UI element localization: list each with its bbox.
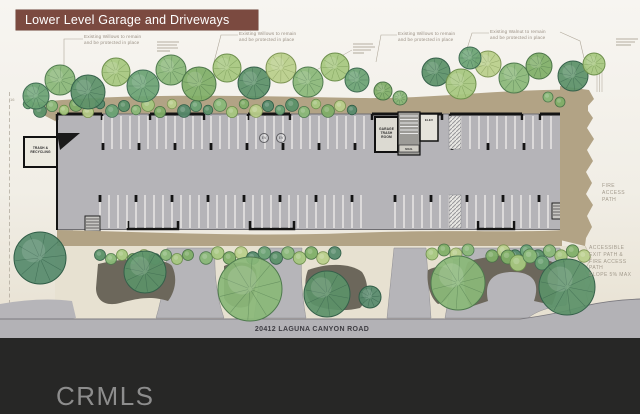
- ev-label: EV: [262, 136, 267, 140]
- tree-note-willows-2: Existing Willows to remain and be protec…: [239, 31, 296, 43]
- crmls-watermark: CRMLS: [56, 381, 155, 412]
- tree-note-willows-3: Existing Willows to remain and be protec…: [398, 31, 455, 43]
- site-plan-drawing: [0, 0, 640, 414]
- tree-note-walnut: Existing Walnut to remain and be protect…: [490, 29, 546, 41]
- elevator-label: ELEV: [420, 119, 438, 122]
- site-plan-page: Lower Level Garage and Driveways Existin…: [0, 0, 640, 414]
- page-title: Lower Level Garage and Driveways: [16, 10, 258, 30]
- trash-recycling-room-label: TRASH & RECYCLING: [25, 147, 56, 155]
- road-name-label: 20412 LAGUNA CANYON ROAD: [0, 326, 624, 333]
- fire-access-path-note: FIRE ACCESS PATH: [602, 183, 625, 203]
- tree-note-willows-1: Existing Willows to remain and be protec…: [84, 34, 141, 46]
- ev-stall-marker-2: EV: [276, 133, 286, 143]
- ev-label: EV: [279, 136, 284, 140]
- accessible-exit-path-note: ACCESSIBLE EXIT PATH & FIRE ACCESS PATH …: [589, 245, 631, 279]
- ev-stall-marker-1: EV: [259, 133, 269, 143]
- mail-room-label: MAIL: [399, 148, 419, 151]
- scale-mark: 16: [10, 97, 14, 102]
- garage-trash-room-label: GARAGE TRASH ROOM: [375, 128, 398, 139]
